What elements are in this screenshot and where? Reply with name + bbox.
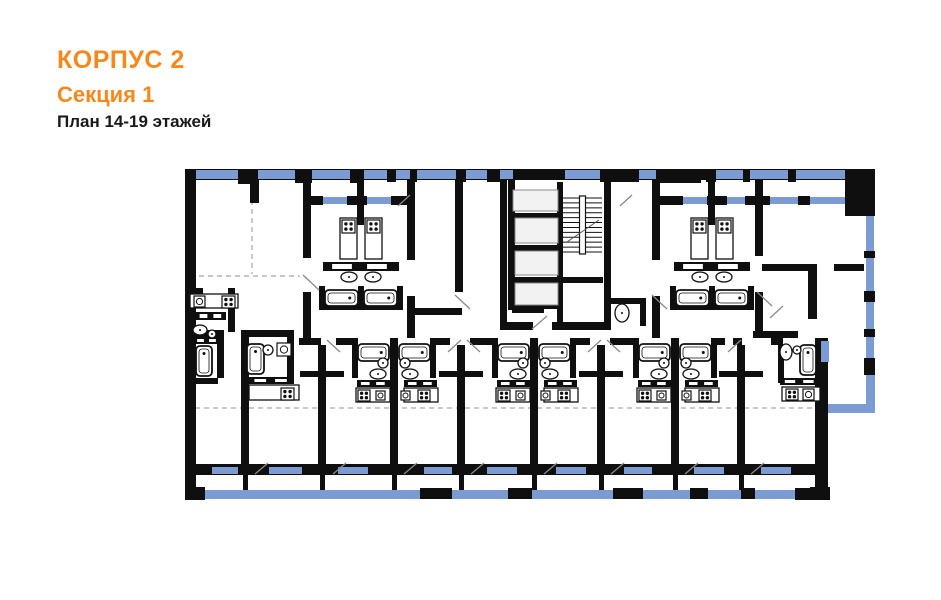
page: КОРПУС 2 Секция 1 План 14-19 этажей (0, 0, 941, 600)
stairs-layer (563, 196, 602, 254)
floor-plan (0, 0, 941, 600)
balcony-strips-layer (203, 375, 875, 499)
